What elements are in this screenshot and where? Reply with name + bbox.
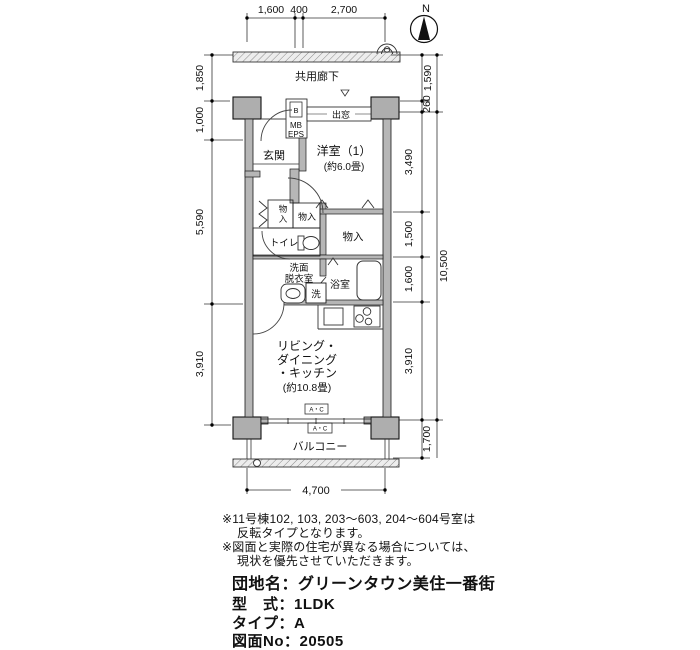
north-arrow-icon xyxy=(411,16,438,43)
ldk-label-line1: リビング・ xyxy=(277,339,337,353)
balcony-drain-icon xyxy=(254,460,261,467)
dim-left-3: 5,590 xyxy=(194,209,206,235)
dim-left-4: 3,910 xyxy=(194,351,206,377)
closet1-label-char1: 物 xyxy=(279,204,288,214)
meter-eps-label: EPS xyxy=(288,130,304,139)
ac-box-balcony-label: A・C xyxy=(313,427,328,433)
ldk-label-line3: ・キッチン xyxy=(277,366,337,380)
top-dimension-line xyxy=(247,13,385,48)
dim-bottom: 4,700 xyxy=(302,485,330,497)
closet2-label: 物入 xyxy=(298,211,316,222)
western-room-size-label: (約6.0畳) xyxy=(324,160,365,173)
dim-top-2: 400 xyxy=(290,4,308,16)
drawing-number: 図面No：20505 xyxy=(232,630,344,650)
bay-window-label: 出窓 xyxy=(332,109,350,120)
north-label: N xyxy=(422,3,430,15)
dim-top-1: 1,600 xyxy=(258,4,284,16)
ac-box-indoor-label: A・C xyxy=(309,408,324,414)
meter-b-label: B xyxy=(293,106,298,115)
right-dimension-dots xyxy=(420,53,438,459)
ldk-label-line2: ダイニング xyxy=(277,352,337,367)
washer-label: 洗 xyxy=(311,289,321,301)
kitchen-counter xyxy=(318,305,383,329)
dim-right-5: 1,600 xyxy=(403,266,415,292)
dim-right-4: 1,500 xyxy=(403,221,415,247)
toilet-label: トイレ xyxy=(270,238,299,249)
dim-right-2: 260 xyxy=(421,95,433,113)
floorplan-document: 1,600 400 2,700 N 共用廊下 1,850 1,000 5,590… xyxy=(0,0,700,650)
bathtub-icon xyxy=(357,261,381,300)
dim-top-3: 2,700 xyxy=(331,4,357,16)
bathroom-label: 浴室 xyxy=(330,278,350,291)
corridor-band xyxy=(204,52,443,62)
washroom-label-line1: 洗面 xyxy=(289,262,308,274)
dim-right-3: 3,490 xyxy=(403,149,415,175)
balcony-label: バルコニー xyxy=(293,440,348,453)
model-type: 型 式：1LDK xyxy=(232,593,335,614)
estate-name: 団地名：グリーンタウン美住一番街 xyxy=(232,570,495,594)
dim-left-2: 1,000 xyxy=(194,107,206,133)
ldk-label-line4: (約10.8畳) xyxy=(283,381,331,394)
dim-left-1: 1,850 xyxy=(194,65,206,91)
balcony-window-lines xyxy=(261,418,371,424)
toilet-fixture-icon xyxy=(298,236,319,250)
western-room-label: 洋室（1） xyxy=(317,143,372,158)
corridor-label: 共用廊下 xyxy=(295,69,339,83)
meter-mb-label: MB xyxy=(290,121,302,130)
entrance-label: 玄関 xyxy=(263,148,285,162)
right-dimension-lines xyxy=(393,55,443,458)
dim-right-1: 1,590 xyxy=(422,65,434,91)
dim-right-7: 1,700 xyxy=(421,426,433,452)
dim-right-total: 10,500 xyxy=(438,250,450,282)
closet1-label-char2: 入 xyxy=(279,214,288,224)
closet-large-label: 物入 xyxy=(343,230,364,243)
note-line-4: 現状を優先させていただきます。 xyxy=(237,552,419,569)
washbasin-icon xyxy=(281,284,305,303)
dim-right-6: 3,910 xyxy=(403,348,415,374)
